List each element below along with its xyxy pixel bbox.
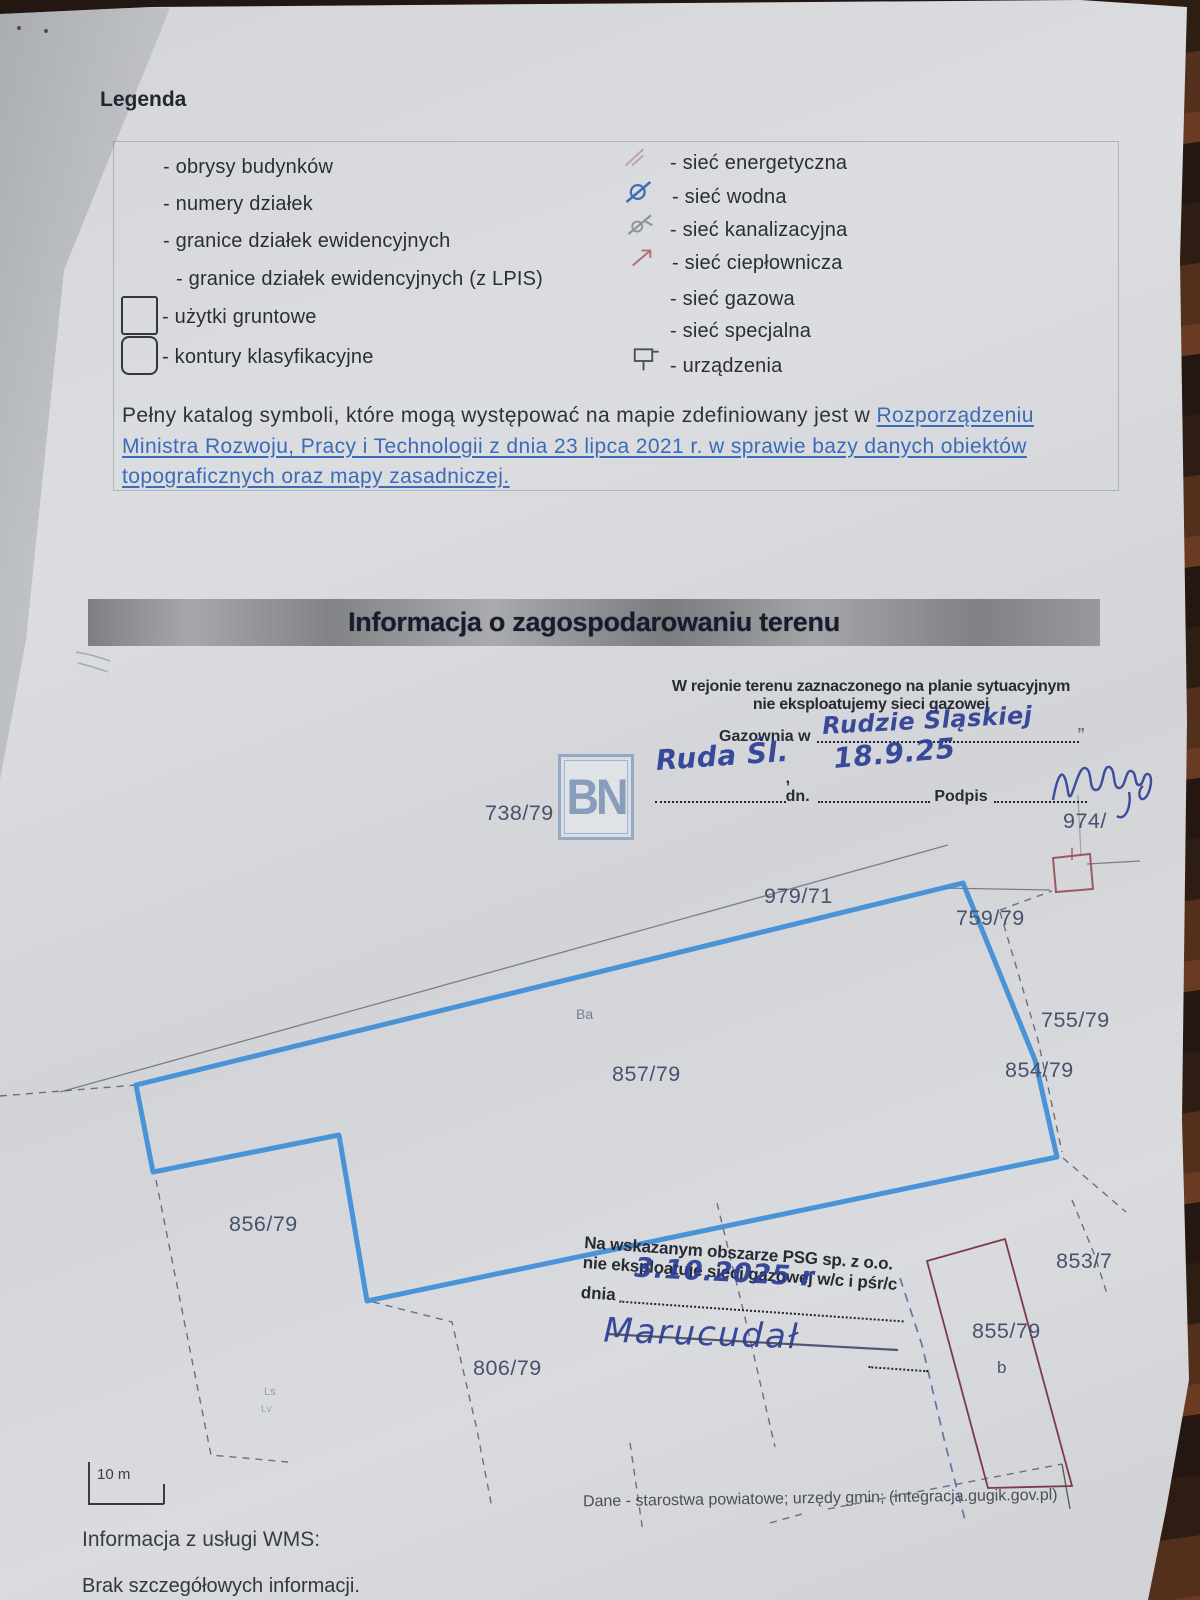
legend-item-building-outlines: - obrysy budynków — [163, 156, 333, 179]
water-network-icon — [624, 178, 654, 206]
dotted-line — [994, 800, 1087, 803]
classification-contour-icon — [121, 336, 158, 375]
section-title: Informacja o zagospodarowaniu terenu — [348, 607, 840, 638]
legend-item-parcel-borders-lpis: - granice działek ewidencyjnych (z LPIS) — [176, 268, 543, 291]
legend-item-heating-network: - sieć ciepłownicza — [672, 252, 843, 275]
legend-item-sewer-network: - sieć kanalizacyjna — [670, 219, 847, 242]
devices-icon — [632, 347, 662, 375]
faint-land-code: Lv — [261, 1404, 272, 1415]
handwritten-signature: Marucudał — [603, 1311, 800, 1358]
gazownia-stamp: W rejonie terenu zaznaczonego na planie … — [655, 678, 1087, 806]
dotted-line — [868, 1365, 928, 1372]
legend-item-water-network: - sieć wodna — [672, 186, 787, 209]
land-use-label: Ba — [576, 1006, 593, 1022]
parcel-label: 759/79 — [956, 906, 1025, 931]
dotted-line — [655, 800, 786, 803]
date-signature-row: , dn. Podpis Ruda Śl. 18.9.25 — [655, 770, 1087, 806]
parcel-label: 853/7 — [1056, 1249, 1112, 1274]
wms-info-label: Informacja z usługi WMS: — [82, 1528, 320, 1552]
bn-watermark-text: BN — [567, 768, 626, 826]
parcel-label: 974/ — [1063, 809, 1107, 834]
legend-item-parcel-numbers: - numery działek — [163, 193, 313, 216]
cadastral-dashed-lines — [0, 891, 1126, 1532]
section-title-bar: Informacja o zagospodarowaniu terenu — [88, 599, 1100, 646]
regulation-link: Ministra Rozwoju, Pracy i Technologii z … — [122, 435, 1027, 458]
podpis-label: Podpis — [934, 788, 987, 806]
cadastral-corner-line — [1062, 1464, 1070, 1509]
symbol-catalog-note: Pełny katalog symboli, które mogą występ… — [122, 401, 1132, 493]
heating-network-icon — [629, 244, 659, 272]
regulation-link: Rozporządzeniu — [876, 404, 1033, 427]
parcel-label: 806/79 — [473, 1356, 542, 1381]
legend-item-gas-network: - sieć gazowa — [670, 288, 795, 311]
legend-item-classification-contours: - kontury klasyfikacyjne — [162, 346, 374, 369]
parcel-label: 856/79 — [229, 1212, 298, 1237]
catalog-note-text: Pełny katalog symboli, które mogą występ… — [122, 404, 876, 427]
parcel-label: 855/79 — [972, 1319, 1041, 1344]
margin-scribble — [76, 652, 110, 672]
land-use-square-icon — [121, 296, 158, 335]
pen-mark: ” — [1077, 726, 1085, 744]
legend-item-land-use: - użytki gruntowe — [162, 306, 317, 329]
dn-label: , dn. — [786, 770, 817, 806]
legend-item-energy-network: - sieć energetyczna — [670, 152, 847, 175]
energy-network-icon — [622, 144, 652, 172]
bn-watermark: BN — [558, 754, 634, 840]
paper-speck — [17, 26, 21, 30]
scale-bar-label: 10 m — [97, 1466, 130, 1483]
sewer-network-icon — [626, 210, 656, 238]
faint-land-code: Ls — [264, 1386, 276, 1398]
parcel-label: 979/71 — [764, 884, 833, 909]
document-page: Legenda - obrysy budynków - numery dział… — [0, 0, 1200, 1600]
legend-item-devices: - urządzenia — [670, 355, 782, 378]
building-outline-974-icon — [1053, 848, 1093, 892]
parcel-label: 854/79 — [1005, 1058, 1074, 1083]
wms-info-value: Brak szczegółowych informacji. — [82, 1575, 360, 1598]
legend-item-special-network: - sieć specjalna — [670, 320, 811, 343]
dnia-label: dnia — [580, 1283, 616, 1305]
stamp-line: W rejonie terenu zaznaczonego na planie … — [655, 678, 1087, 696]
building-letter-label: b — [997, 1358, 1006, 1378]
legend-title: Legenda — [100, 88, 186, 112]
photo-background: Legenda - obrysy budynków - numery dział… — [0, 0, 1200, 1600]
paper-speck — [44, 29, 48, 33]
legend-item-parcel-borders: - granice działek ewidencyjnych — [163, 230, 450, 253]
data-source-line: Dane - starostwa powiatowe; urzędy gmin;… — [583, 1487, 1058, 1512]
parcel-label: 738/79 — [485, 801, 554, 826]
psg-stamp: Na wskazanym obszarze PSG sp. z o.o. nie… — [576, 1233, 956, 1389]
parcel-label: 755/79 — [1041, 1008, 1110, 1033]
dotted-line — [818, 800, 930, 803]
regulation-link: topograficznych oraz mapy zasadniczej. — [122, 465, 510, 488]
parcel-label: 857/79 — [612, 1062, 681, 1087]
